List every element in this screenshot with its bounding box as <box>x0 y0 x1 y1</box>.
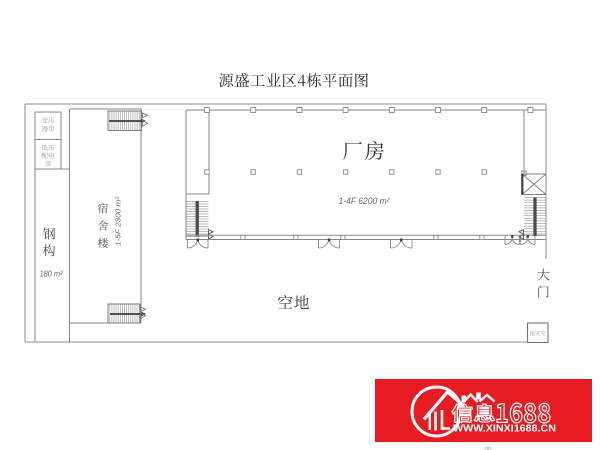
svg-text:WWW.XINXI1688.CN: WWW.XINXI1688.CN <box>453 424 556 435</box>
svg-text:180 m²: 180 m² <box>40 270 63 279</box>
svg-text:1-5F 2300 m²: 1-5F 2300 m² <box>113 196 122 246</box>
svg-text:1-4F 6200 m²: 1-4F 6200 m² <box>339 196 391 206</box>
